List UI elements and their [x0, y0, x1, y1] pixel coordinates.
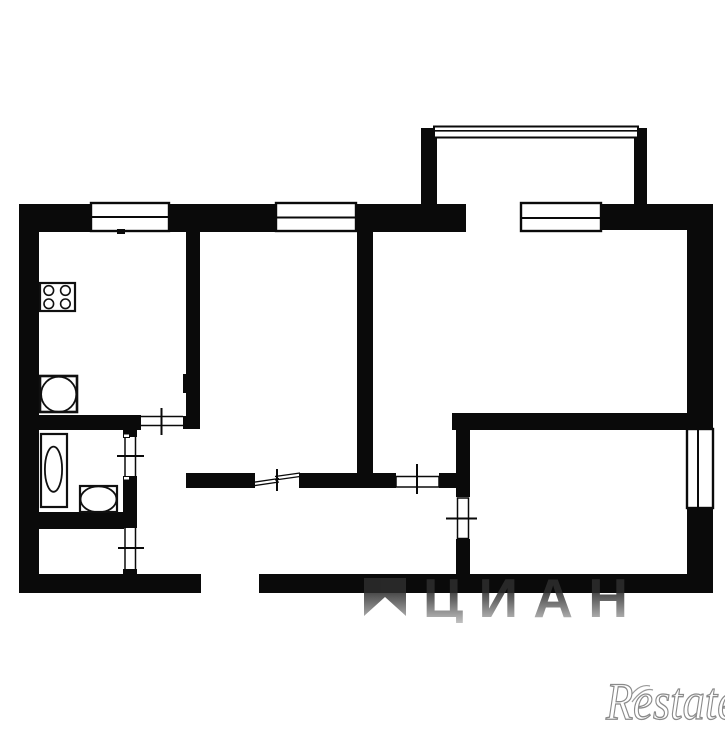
svg-text:Restate: Restate: [605, 673, 725, 725]
